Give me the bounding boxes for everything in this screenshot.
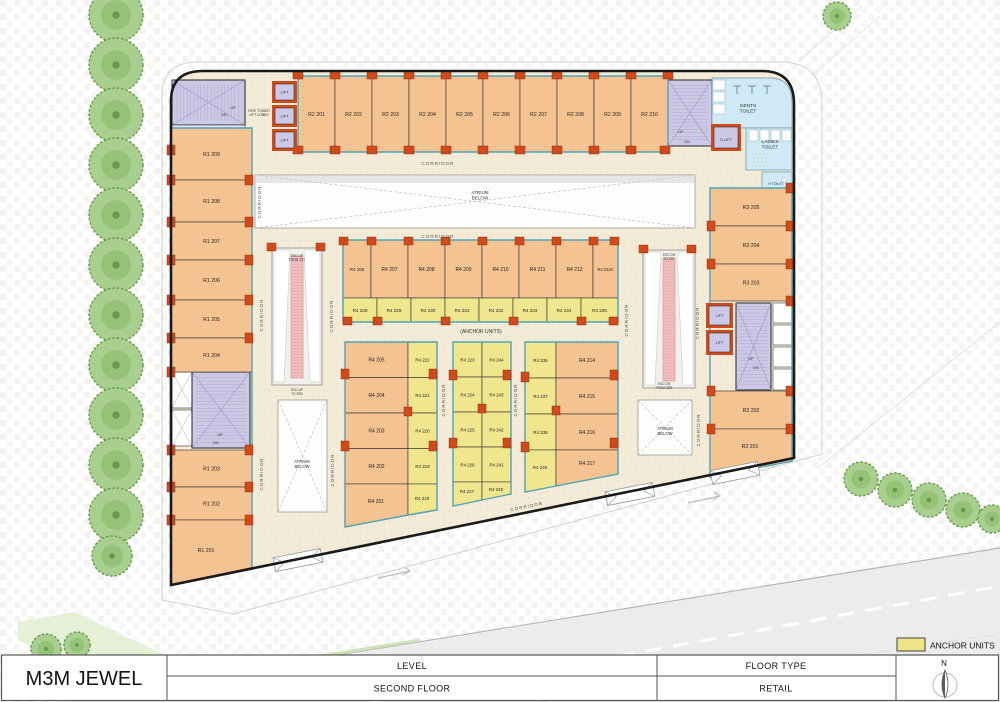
- lift-label: LIFT: [281, 115, 289, 119]
- wall-column: [610, 370, 618, 380]
- wall-column: [245, 295, 253, 305]
- wall-column: [330, 146, 340, 154]
- wall-column: [786, 424, 793, 434]
- room-label-r1-207: R1 207: [203, 239, 220, 245]
- room-label-r4-230: R4 230: [421, 308, 436, 313]
- tree-icon: [844, 462, 878, 496]
- corridor-label: CORRIDOR: [421, 161, 454, 166]
- room-label-r4-210: R4 210: [492, 267, 508, 273]
- room-label-r4-222: R4 222: [415, 358, 430, 363]
- gents-toilet: [712, 78, 792, 128]
- atrium-main: [255, 175, 695, 228]
- wall-column: [343, 317, 352, 325]
- level-label: LEVEL: [397, 661, 427, 671]
- wall-column: [687, 245, 696, 253]
- wall-column: [245, 515, 253, 525]
- tree-icon: [823, 2, 851, 30]
- room-label-r4-218: R4 218: [415, 496, 430, 501]
- room-label-r4-244: R4 244: [489, 357, 504, 362]
- room-label-r4-214: R4 214: [579, 358, 595, 364]
- room-label-r4-232: R4 232: [489, 308, 504, 313]
- room-label-r4-208: R4 208: [418, 267, 434, 273]
- plan-text-dn: DN: [213, 441, 219, 445]
- lift-label: LIFT: [281, 139, 289, 143]
- anchor-units-swatch: [897, 638, 925, 651]
- wall-column: [449, 438, 457, 448]
- stair-top-right: [668, 80, 712, 146]
- project-title: M3M JEWEL: [26, 668, 143, 690]
- wall-column: [367, 237, 376, 245]
- plan-text-atrium: ATRIUMBELOW: [471, 190, 489, 201]
- room-label-r4-243: R4 243: [489, 392, 504, 397]
- room-label-r4-240: R4 240: [489, 487, 504, 492]
- wall-column: [245, 333, 253, 343]
- wall-column: [245, 445, 253, 455]
- room-label-r3-202: R3 202: [743, 408, 760, 414]
- corridor-label: CORRIDOR: [696, 413, 701, 446]
- plan-text-(anchor-units): (ANCHOR UNITS): [460, 329, 502, 335]
- atrium-left: [278, 400, 327, 512]
- wall-column: [515, 237, 524, 245]
- wall-column: [339, 237, 348, 245]
- room-label-r3-203: R3 203: [743, 280, 760, 286]
- room-label-r1-208: R1 208: [203, 199, 220, 205]
- corridor-label: CORRIDOR: [421, 234, 454, 239]
- wall-column: [552, 146, 562, 154]
- corridor-label: CORRIDOR: [257, 185, 262, 218]
- wall-column: [429, 369, 437, 379]
- room-label-r1-209: R1 209: [203, 152, 220, 158]
- room-label-r4-220: R4 220: [415, 429, 430, 434]
- corridor-label: CORRIDOR: [329, 299, 334, 332]
- wall-column: [478, 146, 488, 154]
- lift: LIFT: [272, 81, 297, 103]
- room-label-r4-237: R4 237: [533, 394, 548, 399]
- room-label-r4-228: R4 228: [353, 308, 368, 313]
- room-label-r4-204: R4 204: [368, 393, 384, 399]
- lift: LIFT: [706, 330, 733, 355]
- wall-column: [245, 482, 253, 492]
- tree-icon: [89, 188, 143, 242]
- wall-column: [515, 146, 525, 154]
- wall-column: [503, 438, 511, 448]
- tree-icon: [912, 483, 946, 517]
- lift: LIFT: [272, 105, 297, 127]
- wall-column: [373, 317, 382, 325]
- wall-column: [786, 259, 793, 269]
- room-r4-239: [525, 450, 556, 492]
- room-label-r4-212a: R4 212A: [598, 267, 614, 272]
- wall-column: [341, 441, 349, 451]
- wall-column: [626, 146, 636, 154]
- escalator-left: [272, 248, 322, 385]
- tree-icon: [89, 338, 143, 392]
- room-label-r4-205: R4 205: [368, 358, 384, 364]
- tree-icon: [978, 505, 1000, 533]
- plan-text-esc-up: ESC UPTO 3RD: [291, 388, 303, 396]
- wall-column: [441, 146, 451, 154]
- wall-column: [552, 237, 561, 245]
- plan-text-fire-tower: FIRE TOWERLIFT LOBBY: [248, 109, 270, 117]
- room-label-r2-204: R2 204: [419, 112, 436, 118]
- tree-icon: [89, 138, 143, 192]
- room-label-r4-212: R4 212: [566, 267, 582, 273]
- wall-column: [503, 370, 511, 380]
- tree-icon: [64, 632, 90, 658]
- plan-text-up: UP: [748, 357, 754, 361]
- room-label-r2-206: R2 206: [493, 112, 510, 118]
- north-label: N: [941, 659, 947, 668]
- wall-column: [341, 369, 349, 379]
- room-label-r2-208: R2 208: [567, 112, 584, 118]
- wall-column: [367, 146, 377, 154]
- room-label-r4-226: R4 226: [460, 462, 475, 467]
- lift: LIFT: [272, 129, 297, 151]
- plan-text-ladies: LADIESTOILET: [761, 139, 778, 151]
- room-label-r4-221: R4 221: [415, 393, 430, 398]
- wall-column: [441, 317, 450, 325]
- corridor-label: CORRIDOR: [259, 298, 264, 331]
- room-label-r4-236: R4 236: [533, 358, 548, 363]
- level-value: SECOND FLOOR: [374, 684, 451, 694]
- wall-column: [577, 317, 586, 325]
- wall-column: [509, 317, 518, 325]
- wall-column: [786, 386, 793, 396]
- wall-column: [267, 243, 276, 251]
- wall-column: [245, 175, 253, 185]
- plan-text-up: UP: [217, 433, 223, 437]
- plan-text-atrium: ATRIUMBELOW: [657, 426, 673, 436]
- room-label-r2-210: R2 210: [641, 112, 658, 118]
- corridor-label: CORRIDOR: [441, 383, 446, 416]
- wall-column: [478, 404, 486, 413]
- plan-text-up: UP: [230, 106, 236, 110]
- wall-column: [639, 245, 648, 253]
- lift-label: LIFT: [716, 341, 724, 345]
- room-label-r4-235: R4 235: [592, 308, 607, 313]
- wall-column: [552, 406, 560, 415]
- wall-column: [707, 221, 715, 231]
- room-label-r1-204: R1 204: [203, 353, 220, 359]
- room-label-r4-238: R4 238: [533, 430, 548, 435]
- room-label-r4-201: R4 201: [368, 499, 384, 505]
- tree-icon: [89, 88, 143, 142]
- wall-column: [404, 237, 413, 245]
- plan-text-dn: DN: [753, 366, 759, 370]
- escalator-right: [643, 250, 695, 388]
- floor-type-label: FLOOR TYPE: [746, 661, 807, 671]
- wall-column: [589, 146, 599, 154]
- wall-column: [610, 438, 618, 448]
- lift-label: LIFT: [716, 314, 724, 318]
- wall-column: [429, 441, 437, 451]
- plan-text-esc-dn: ESC DNTO 1ST: [663, 253, 676, 261]
- plan-text-atrium: ATRIUMBELOW: [294, 459, 310, 469]
- room-label-r4-229: R4 229: [387, 308, 402, 313]
- room-label-r2-209: R2 209: [604, 112, 621, 118]
- plan-text-esc-up: ESC UPFROM 1ST: [289, 254, 305, 262]
- wall-column: [316, 243, 325, 251]
- plan-text-s.lift: S.LIFT: [720, 137, 733, 142]
- wall-column: [245, 217, 253, 227]
- room-label-r3-201: R3 201: [742, 444, 759, 450]
- plan-text-h.toilet: H.TOILET: [768, 182, 783, 186]
- wall-column: [589, 237, 598, 245]
- wall-column: [609, 317, 618, 325]
- room-label-r4-224: R4 224: [460, 392, 475, 397]
- stair-left-mid: [172, 372, 250, 448]
- room-label-r4-234: R4 234: [557, 308, 572, 313]
- room-label-r4-209: R4 209: [455, 267, 471, 273]
- room-label-r4-239: R4 239: [533, 465, 548, 470]
- room-label-r2-202: R2 202: [345, 112, 362, 118]
- wall-column: [786, 221, 793, 231]
- room-label-r2-203: R2 203: [382, 112, 399, 118]
- room-label-r4-216: R4 216: [579, 430, 595, 436]
- tree-icon: [89, 438, 143, 492]
- tree-icon: [92, 536, 132, 576]
- room-label-r4-219: R4 219: [415, 464, 430, 469]
- tree-icon: [89, 238, 143, 292]
- room-label-r4-233: R4 233: [523, 308, 538, 313]
- room-label-r4-227: R4 227: [460, 489, 475, 494]
- lift: LIFT: [706, 303, 733, 328]
- wall-column: [478, 237, 487, 245]
- plan-text-up: UP: [678, 130, 684, 134]
- wall-column: [404, 146, 414, 154]
- room-label-r4-217: R4 217: [579, 461, 595, 467]
- wall-column: [245, 255, 253, 265]
- floor-plan-drawing: R2 201R2 202R2 203R2 204R2 205R2 206R2 2…: [0, 0, 1000, 702]
- wall-column: [404, 407, 412, 416]
- wall-column: [521, 372, 529, 382]
- room-label-r4-231: R4 231: [455, 308, 470, 313]
- tree-icon: [89, 388, 143, 442]
- room-label-r4-207: R4 207: [381, 267, 397, 273]
- wall-column: [786, 296, 793, 306]
- room-label-r4-225: R4 225: [460, 427, 475, 432]
- room-label-r4-203: R4 203: [368, 429, 384, 435]
- plan-text-dn: DN: [684, 140, 690, 144]
- tree-icon: [89, 288, 143, 342]
- title-block: M3M JEWEL LEVEL SECOND FLOOR FLOOR TYPE …: [2, 655, 999, 701]
- floor-plan-page: R2 201R2 202R2 203R2 204R2 205R2 206R2 2…: [0, 0, 1000, 702]
- floor-type-value: RETAIL: [759, 684, 792, 694]
- room-label-r1-205: R1 205: [203, 317, 220, 323]
- wall-column: [786, 183, 793, 193]
- corridor-label: CORRIDOR: [513, 383, 518, 416]
- tree-icon: [878, 473, 912, 507]
- room-label-r3-204: R3 204: [743, 243, 760, 249]
- tree-icon: [946, 493, 980, 527]
- legend: ANCHOR UNITS: [897, 638, 995, 651]
- corridor-label: CORRIDOR: [624, 303, 629, 336]
- room-label-r3-205: R3 205: [743, 205, 760, 211]
- room-label-r1-203: R1 203: [203, 466, 220, 472]
- room-label-r1-206: R1 206: [203, 278, 220, 284]
- plan-text-gents: GENTSTOILET: [740, 103, 757, 115]
- wall-column: [610, 237, 619, 245]
- room-label-r1-202: R1 202: [203, 501, 220, 507]
- wall-column: [707, 386, 715, 396]
- room-label-r2-201: R2 201: [308, 112, 325, 118]
- plan-text-dn: DN: [221, 113, 227, 117]
- room-label-r4-211: R4 211: [530, 267, 546, 273]
- wall-column: [707, 424, 715, 434]
- corridor-label: CORRIDOR: [695, 306, 700, 339]
- anchor-units-label: ANCHOR UNITS: [930, 641, 995, 651]
- room-label-r4-223: R4 223: [460, 357, 475, 362]
- room-label-r4-202: R4 202: [368, 464, 384, 470]
- wall-column: [521, 442, 529, 452]
- corridor-label: CORRIDOR: [330, 453, 335, 486]
- room-label-r4-215: R4 215: [579, 394, 595, 400]
- room-label-r2-207: R2 207: [530, 112, 547, 118]
- room-label-r4-206: R4 206: [350, 267, 365, 272]
- tree-icon: [89, 38, 143, 92]
- room-label-r2-205: R2 205: [456, 112, 473, 118]
- lift-label: LIFT: [281, 91, 289, 95]
- wall-column: [449, 370, 457, 380]
- tree-icon: [89, 488, 143, 542]
- room-label-r4-242: R4 242: [489, 427, 504, 432]
- wall-column: [660, 146, 670, 154]
- corridor-label: CORRIDOR: [259, 457, 264, 490]
- room-label-r4-241: R4 241: [489, 462, 504, 467]
- wall-column: [707, 259, 715, 269]
- room-label-r1-201: R1 201: [198, 548, 215, 554]
